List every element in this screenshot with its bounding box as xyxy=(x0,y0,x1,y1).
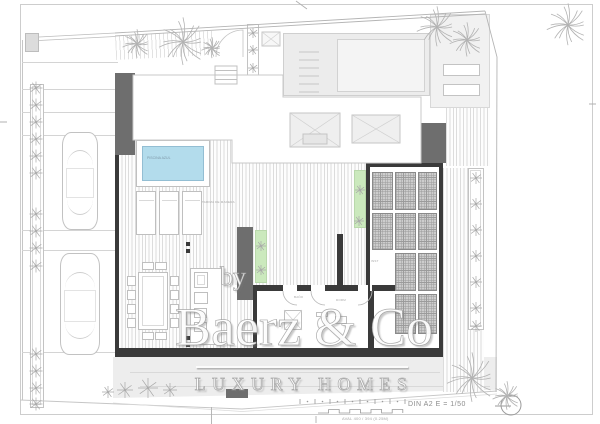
registration-marks xyxy=(0,1,596,424)
agave-plant-icon xyxy=(256,241,266,251)
agave-plant-icon xyxy=(355,185,365,195)
agave-plant-icon xyxy=(30,150,43,163)
watermark-brand: Baerz & Co xyxy=(168,300,440,354)
agave-plant-icon xyxy=(470,276,482,288)
palm-tree-icon xyxy=(159,17,201,65)
agave-plant-icon xyxy=(30,225,43,238)
agave-plant-icon xyxy=(256,265,266,275)
agave-plant-icon xyxy=(30,133,43,146)
palm-tree-icon xyxy=(547,3,584,45)
agave-plant-icon xyxy=(248,63,258,73)
agave-plant-icon xyxy=(30,260,43,273)
agave-plant-icon xyxy=(248,45,258,55)
palm-tree-icon xyxy=(123,29,148,58)
palm-tree-icon xyxy=(201,37,220,58)
agave-plant-icon xyxy=(30,398,43,411)
watermark-by: by xyxy=(220,262,246,292)
agave-plant-icon xyxy=(354,216,364,226)
site-boundary-east xyxy=(485,11,497,392)
sheet-scale-note: DIN A2 E = 1/50 xyxy=(408,401,466,408)
graphic-scale-bar xyxy=(318,410,403,414)
agave-plant-icon xyxy=(30,382,43,395)
site-linework xyxy=(0,0,600,424)
agave-plant-icon xyxy=(30,116,43,129)
agave-plant-icon xyxy=(30,82,43,95)
fence-line xyxy=(39,33,115,41)
sheet-footer-note: AVAL 400 / 394 (0.25M) xyxy=(342,416,389,421)
agave-plant-icon xyxy=(117,382,133,398)
agave-plant-icon xyxy=(470,250,482,262)
palm-tree-icon xyxy=(417,6,452,46)
watermark-divider xyxy=(196,366,408,368)
agave-plant-icon xyxy=(30,365,43,378)
agave-plant-icon xyxy=(470,302,482,314)
agave-plant-icon xyxy=(470,320,482,332)
agave-plant-icon xyxy=(30,208,43,221)
agave-plant-icon xyxy=(248,28,258,38)
agave-plant-icon xyxy=(30,167,43,180)
palm-tree-icon xyxy=(450,22,480,56)
floor-plan-sheet: PISCINA AZUL TARIMA DE MADERA BAÑO DORM … xyxy=(0,0,600,424)
agave-plant-icon xyxy=(102,386,114,398)
agave-plant-icon xyxy=(470,198,482,210)
agave-plant-icon xyxy=(30,99,43,112)
agave-plant-icon xyxy=(138,378,158,398)
agave-plant-icon xyxy=(30,348,43,361)
watermark-tagline: LUXURY HOMES xyxy=(168,374,440,395)
agave-plant-icon xyxy=(470,224,482,236)
entry-gate-arc xyxy=(216,30,243,57)
agave-plant-icon xyxy=(30,242,43,255)
agave-plant-icon xyxy=(470,172,482,184)
